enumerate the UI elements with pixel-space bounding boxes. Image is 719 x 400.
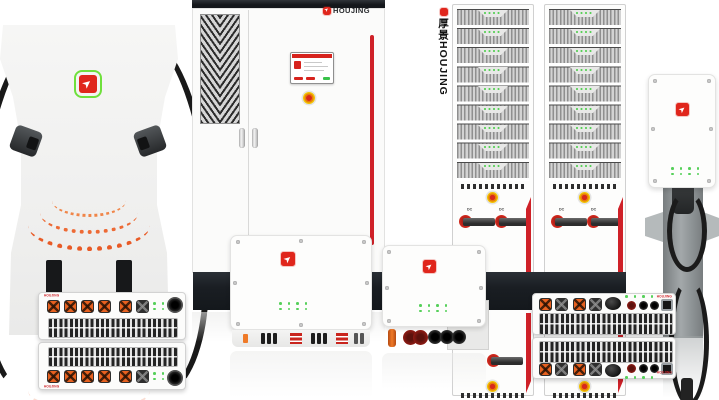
display-header [292,54,332,58]
product-wall-inverter-large[interactable]: ➤ [230,235,372,395]
vent-slots [553,184,617,189]
brand-arrow-icon: ➤ [79,75,97,93]
product-power-module-pair-left[interactable]: HOUJING HOUJING [38,292,186,392]
cabinet-accent-stripe [370,35,374,245]
rack-emergency-stop[interactable] [487,192,498,203]
power-module: HOUJING [38,342,186,390]
terminal-row [382,327,486,349]
brand-name-label: HOUJING [333,6,370,15]
module-brand-label: HOUJING [44,385,59,388]
display-logo-block [294,61,301,69]
inverter-reflection [382,353,486,395]
module-air-grille [539,341,673,363]
module-status-leds [625,376,653,379]
vent-slots [553,393,617,398]
dc-label: DC [499,208,504,212]
rack-emergency-stop-lower[interactable] [487,381,498,392]
emergency-stop-button[interactable] [303,92,315,104]
cooling-fan-icon [167,370,183,386]
rack-emergency-stop[interactable] [579,192,590,203]
status-leds [419,304,447,312]
cable-plug [681,378,693,400]
product-showcase: ➤ ➤ HOUJING [0,0,719,400]
brand-logo-icon [440,8,448,16]
power-module-stack [549,9,621,181]
door-handle-left[interactable] [239,128,245,148]
rack-accent-stripe [618,197,623,275]
vent-slots [461,184,525,189]
dc-label: DC [559,208,564,212]
inverter-reflection [230,351,372,400]
module-air-grille [48,318,178,338]
rack-emergency-stop-lower[interactable] [579,381,590,392]
power-module: HOUJING [38,292,186,340]
hmi-display[interactable] [290,52,334,84]
module-brand-label: HOUJING [657,295,672,298]
dc-label: DC [591,208,596,212]
product-rectifier-module-pair[interactable]: HOUJING HOUJING [532,293,676,381]
product-wall-inverter-small[interactable]: ➤ [382,245,488,395]
cabinet-brand: ➤ HOUJING [323,6,370,15]
rotary-knob[interactable] [605,297,621,310]
brand-logo: ➤ [74,70,102,98]
inverter-box: ➤ [382,245,486,327]
rectifier-module: HOUJING [532,293,676,335]
brand-logo-icon: ➤ [323,7,331,15]
wall-charger-box: ➤ [648,74,716,188]
ventilation-grille [200,14,240,124]
power-module-stack [457,9,529,181]
status-leds [671,167,699,175]
rack-vertical-brand: 厚景HOUJING [436,8,451,178]
module-brand-label: HOUJING [657,371,672,374]
brand-logo-icon: ➤ [281,252,295,266]
rack-accent-stripe [526,197,531,275]
charging-indicator-arc-3 [28,200,150,251]
module-air-grille [48,347,178,367]
inverter-box: ➤ [230,235,372,330]
status-leds [279,302,307,310]
dc-label: DC [467,208,472,212]
cabinet-door-seam [248,10,249,262]
brand-logo-icon: ➤ [423,260,436,273]
rotary-knob[interactable] [605,364,621,377]
door-handle-right[interactable] [252,128,258,148]
brand-logo-icon: ➤ [676,103,689,116]
pedestal-wing-left [645,212,663,242]
module-brand-label: HOUJING [44,294,59,297]
module-air-grille [539,313,673,335]
module-status-leds [625,295,653,298]
dc-disconnect-switch-lower[interactable] [487,353,527,369]
terminal-strip [232,330,370,347]
cooling-fan-icon [167,297,183,313]
vertical-brand-label: 厚景HOUJING [436,18,451,96]
dc-disconnect-switch[interactable] [459,214,499,230]
cable-loop-upper [667,190,707,272]
rectifier-module: HOUJING [532,337,676,379]
dc-disconnect-switch[interactable] [551,214,591,230]
